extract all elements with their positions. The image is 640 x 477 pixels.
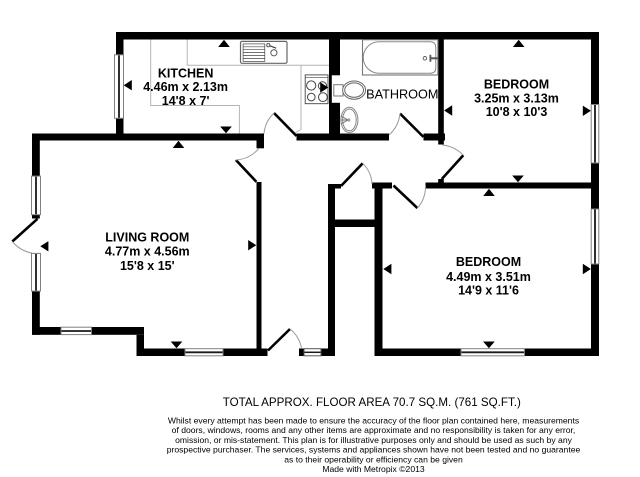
svg-text:Made with Metropix ©2013: Made with Metropix ©2013 <box>322 464 425 474</box>
svg-text:10'8 x 10'3: 10'8 x 10'3 <box>486 105 548 119</box>
svg-text:TOTAL APPROX. FLOOR AREA 70.7: TOTAL APPROX. FLOOR AREA 70.7 SQ.M. (761… <box>223 396 521 409</box>
svg-text:BEDROOM: BEDROOM <box>456 255 521 269</box>
svg-text:15'8 x 15': 15'8 x 15' <box>120 259 175 273</box>
svg-text:14'9 x 11'6: 14'9 x 11'6 <box>458 284 519 298</box>
svg-text:Whilst every attempt has been: Whilst every attempt has been made to en… <box>168 415 579 425</box>
svg-text:of doors, windows, rooms and a: of doors, windows, rooms and any other i… <box>172 425 576 435</box>
svg-text:BATHROOM: BATHROOM <box>366 88 438 102</box>
svg-text:4.49m x 3.51m: 4.49m x 3.51m <box>446 270 531 284</box>
svg-text:prospective purchaser. The ser: prospective purchaser. The services, sys… <box>167 445 581 455</box>
svg-text:4.77m x 4.56m: 4.77m x 4.56m <box>105 245 190 259</box>
svg-text:4.46m x 2.13m: 4.46m x 2.13m <box>143 80 228 94</box>
svg-text:14'8 x 7': 14'8 x 7' <box>162 94 210 108</box>
svg-text:LIVING ROOM: LIVING ROOM <box>105 231 189 245</box>
svg-text:BEDROOM: BEDROOM <box>484 78 549 92</box>
svg-text:as to their operability or eff: as to their operability or efficiency ca… <box>284 454 463 464</box>
svg-text:KITCHEN: KITCHEN <box>158 66 214 80</box>
svg-text:3.25m x 3.13m: 3.25m x 3.13m <box>474 92 559 106</box>
svg-text:omission, or mis-statement. Th: omission, or mis-statement. This plan is… <box>175 435 572 445</box>
